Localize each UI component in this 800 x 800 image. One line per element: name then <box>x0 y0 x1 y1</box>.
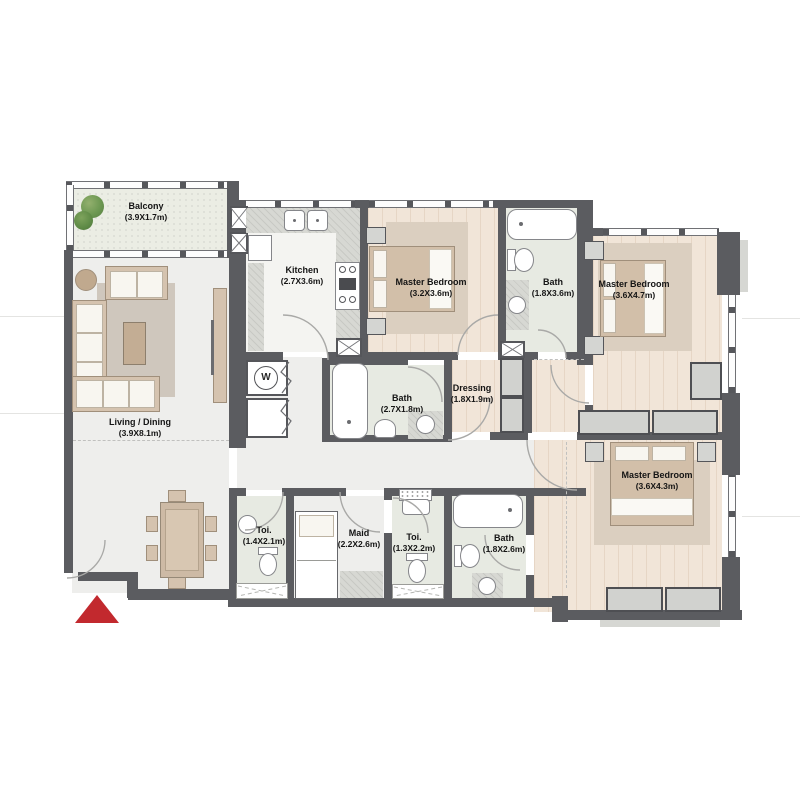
room-label-master-bedroom-3: Master Bedroom (3.6X4.3m) <box>621 470 692 492</box>
guide-line <box>0 413 66 414</box>
sofa-cushion <box>129 380 155 408</box>
room-label-toilet-2: Toi. (1.3X2.2m) <box>393 532 436 554</box>
shaft-icon <box>230 232 248 254</box>
dining-chair-icon <box>205 516 217 532</box>
sink-drain <box>293 219 296 222</box>
room-name: Balcony <box>125 201 168 212</box>
room-name: Bath <box>381 393 424 404</box>
dining-table-top <box>165 509 199 571</box>
toilet-icon <box>514 248 534 272</box>
sofa-cushion <box>110 271 137 298</box>
shaft-icon <box>500 341 525 358</box>
room-name: Master Bedroom <box>395 277 466 288</box>
wall-corner-ne <box>717 232 740 295</box>
room-dims: (2.7X1.8m) <box>381 404 424 415</box>
toilet-icon <box>259 553 277 576</box>
dining-chair-icon <box>146 516 158 532</box>
bed-blanket <box>611 498 693 516</box>
dashed-line <box>534 359 584 360</box>
bedroom1-window <box>369 200 495 208</box>
room-label-dressing: Dressing (1.8X1.9m) <box>451 383 494 405</box>
balcony-railing <box>66 181 237 189</box>
sofa-cushion <box>76 304 103 333</box>
burner-icon <box>349 266 356 273</box>
dining-chair-icon <box>205 545 217 561</box>
guide-line <box>0 316 66 317</box>
room-label-kitchen: Kitchen (2.7X3.6m) <box>281 265 324 287</box>
nightstand-icon <box>366 227 386 244</box>
dining-chair-icon <box>168 490 186 502</box>
room-name: Bath <box>483 533 526 544</box>
maid-cabinet <box>340 571 383 598</box>
dining-chair-icon <box>146 545 158 561</box>
stove-panel <box>339 278 356 290</box>
tv-console-icon <box>213 288 227 403</box>
sink-icon <box>478 577 496 595</box>
tub-drain <box>508 508 512 512</box>
bathtub-icon <box>453 494 523 528</box>
dashed-line <box>73 440 229 441</box>
room-dims: (1.4X2.1m) <box>243 536 286 547</box>
burner-icon <box>339 296 346 303</box>
window-sill <box>740 240 748 292</box>
washing-machine-icon: W <box>254 366 278 390</box>
pillow-icon <box>603 299 616 333</box>
sofa-cushion <box>76 380 103 408</box>
wall-dressing-closet <box>523 358 532 433</box>
room-name: Toi. <box>243 525 286 536</box>
room-dims: (3.9X8.1m) <box>109 428 171 439</box>
room-dims: (1.8X1.9m) <box>451 394 494 405</box>
wall-bath3-right-b <box>526 575 534 600</box>
corridor-floor <box>237 440 577 490</box>
burner-icon <box>349 296 356 303</box>
tub-drain <box>347 420 351 424</box>
wall-bath3-right-a <box>526 490 534 535</box>
wall-corridor-top-a <box>229 352 283 360</box>
room-dims: (3.9X1.7m) <box>125 212 168 223</box>
nightstand-icon <box>584 241 604 260</box>
wall-bath2-top <box>322 358 408 365</box>
room-dims: (1.8X3.6m) <box>532 288 575 299</box>
sofa-cushion <box>76 333 103 362</box>
wall-right-mid <box>722 393 740 475</box>
room-label-bath-1: Bath (1.8X3.6m) <box>532 277 575 299</box>
side-table-icon <box>75 269 97 291</box>
room-label-toilet-1: Toi. (1.4X2.1m) <box>243 525 286 547</box>
room-dims: (1.8X2.6m) <box>483 544 526 555</box>
pillow-icon <box>373 250 387 278</box>
room-label-master-bedroom-1: Master Bedroom (3.2X3.6m) <box>395 277 466 299</box>
kitchen-counter-left <box>248 263 264 351</box>
room-name: Maid <box>338 528 381 539</box>
wall-toilet2-bath3 <box>444 490 452 600</box>
bedroom2-window-right <box>728 295 736 393</box>
kitchen-window <box>237 200 357 208</box>
bedroom3-window-right <box>728 475 736 557</box>
room-dims: (3.6X4.7m) <box>598 290 669 301</box>
room-dims: (3.6X4.3m) <box>621 481 692 492</box>
wall-bath2-left <box>322 358 330 442</box>
room-label-bath-2: Bath (2.7X1.8m) <box>381 393 424 415</box>
room-label-balcony: Balcony (3.9X1.7m) <box>125 201 168 223</box>
toilet-icon <box>408 559 426 583</box>
room-label-bath-3: Bath (1.8X2.6m) <box>483 533 526 555</box>
pillow-icon <box>373 280 387 308</box>
burner-icon <box>339 266 346 273</box>
coffee-table-icon <box>123 322 146 365</box>
pillow-icon <box>299 515 334 537</box>
room-dims: (2.2X2.6m) <box>338 539 381 550</box>
tv-icon <box>211 320 214 375</box>
bathtub-icon <box>332 363 368 439</box>
room-label-master-bedroom-2: Master Bedroom (3.6X4.7m) <box>598 279 669 301</box>
floor-plan: W <box>0 0 800 800</box>
toilet-icon <box>374 419 396 438</box>
dining-chair-icon <box>168 577 186 589</box>
room-name: Bath <box>532 277 575 288</box>
nightstand-icon <box>697 442 716 462</box>
nightstand-icon <box>366 318 386 335</box>
pillow-icon <box>652 446 686 461</box>
room-name: Dressing <box>451 383 494 394</box>
sink-icon <box>402 499 430 515</box>
dressing-closet-icon <box>500 358 524 397</box>
sofa-cushion <box>137 271 163 298</box>
shaft-icon <box>336 338 362 357</box>
wardrobe-icon <box>652 410 718 435</box>
sink-icon <box>508 296 526 314</box>
wardrobe-icon <box>606 587 663 612</box>
tub-drain <box>519 222 523 226</box>
room-dims: (3.2X3.6m) <box>395 288 466 299</box>
sink-drain <box>316 219 319 222</box>
toilet-icon <box>460 544 480 568</box>
wall-bedroom1-bath1 <box>498 200 506 360</box>
wardrobe-icon <box>690 362 722 400</box>
room-dims: (2.7X3.6m) <box>281 276 324 287</box>
dashed-line <box>566 442 567 588</box>
room-name: Master Bedroom <box>598 279 669 290</box>
room-label-living-dining: Living / Dining (3.9X8.1m) <box>109 417 171 439</box>
balcony-railing-left <box>66 185 74 251</box>
nightstand-icon <box>584 336 604 355</box>
wall-corridor-bottom-a <box>490 432 528 440</box>
bedroom2-window <box>603 228 719 236</box>
entrance-marker-icon <box>75 595 119 623</box>
guide-line <box>742 516 800 517</box>
tree-icon <box>74 211 93 230</box>
wall-bottom-b <box>128 589 230 600</box>
bathtub-icon <box>507 209 577 240</box>
room-name: Master Bedroom <box>621 470 692 481</box>
sink-icon <box>416 415 435 434</box>
wardrobe-icon <box>665 587 721 612</box>
guide-line <box>742 318 800 319</box>
pillow-icon <box>615 446 649 461</box>
wall-maid-toilet2-b <box>384 533 392 600</box>
wall-maid-toilet2-a <box>384 490 392 500</box>
bed-line <box>297 560 336 561</box>
room-name: Toi. <box>393 532 436 543</box>
sofa-cushion <box>103 380 129 408</box>
wall-bottom-row <box>228 598 562 607</box>
wall-kitchen-bedroom1 <box>360 200 368 360</box>
wardrobe-icon <box>578 410 650 435</box>
room-name: Living / Dining <box>109 417 171 428</box>
storage-closet <box>246 398 288 438</box>
nightstand-icon <box>585 442 604 462</box>
threshold-vent <box>236 583 288 599</box>
room-dims: (1.3X2.2m) <box>393 543 436 554</box>
balcony-glazing <box>66 250 237 258</box>
dressing-closet-icon <box>500 397 524 433</box>
room-label-maid: Maid (2.2X2.6m) <box>338 528 381 550</box>
threshold-vent <box>392 584 444 599</box>
window-sill-bottom <box>600 620 720 627</box>
room-name: Kitchen <box>281 265 324 276</box>
fridge-icon <box>248 235 272 261</box>
